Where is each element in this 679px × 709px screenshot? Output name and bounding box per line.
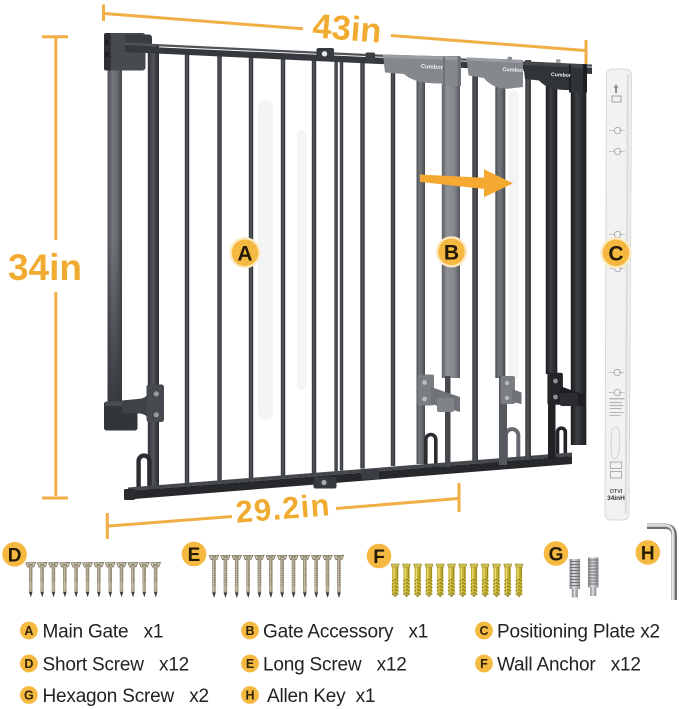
svg-text:A: A (237, 242, 252, 265)
svg-text:E: E (246, 657, 254, 671)
svg-text:D: D (24, 657, 33, 671)
svg-text:F: F (480, 657, 488, 671)
svg-text:G: G (549, 545, 564, 566)
svg-text:Cumbor: Cumbor (551, 72, 571, 79)
svg-text:E: E (188, 545, 201, 566)
svg-text:Cumbor: Cumbor (421, 64, 444, 71)
svg-text:F: F (373, 547, 385, 568)
svg-text:H: H (641, 543, 655, 564)
svg-text:43in: 43in (311, 7, 383, 50)
svg-text:34inH: 34inH (607, 495, 625, 502)
svg-text:Wall Anchor x12: Wall Anchor x12 (497, 655, 641, 676)
svg-text:Positioning Plate x2: Positioning Plate x2 (497, 622, 660, 643)
svg-text:B: B (444, 241, 459, 264)
svg-text:Short Screw x12: Short Screw x12 (43, 655, 190, 676)
svg-text:Allen Key x1: Allen Key x1 (267, 686, 375, 707)
svg-text:Gate Accessory x1: Gate Accessory x1 (263, 622, 428, 643)
svg-text:H: H (245, 689, 254, 703)
svg-text:34in: 34in (8, 247, 82, 288)
svg-text:Long Screw x12: Long Screw x12 (263, 655, 407, 676)
svg-text:A: A (24, 624, 33, 638)
svg-text:C: C (479, 624, 488, 638)
svg-text:Hexagon Screw x2: Hexagon Screw x2 (43, 686, 209, 707)
svg-text:D: D (8, 545, 22, 566)
svg-text:B: B (245, 624, 254, 638)
svg-text:Cumbor: Cumbor (502, 67, 524, 74)
svg-text:G: G (24, 689, 34, 703)
svg-text:Main Gate x1: Main Gate x1 (43, 622, 164, 643)
svg-text:C: C (608, 242, 623, 265)
